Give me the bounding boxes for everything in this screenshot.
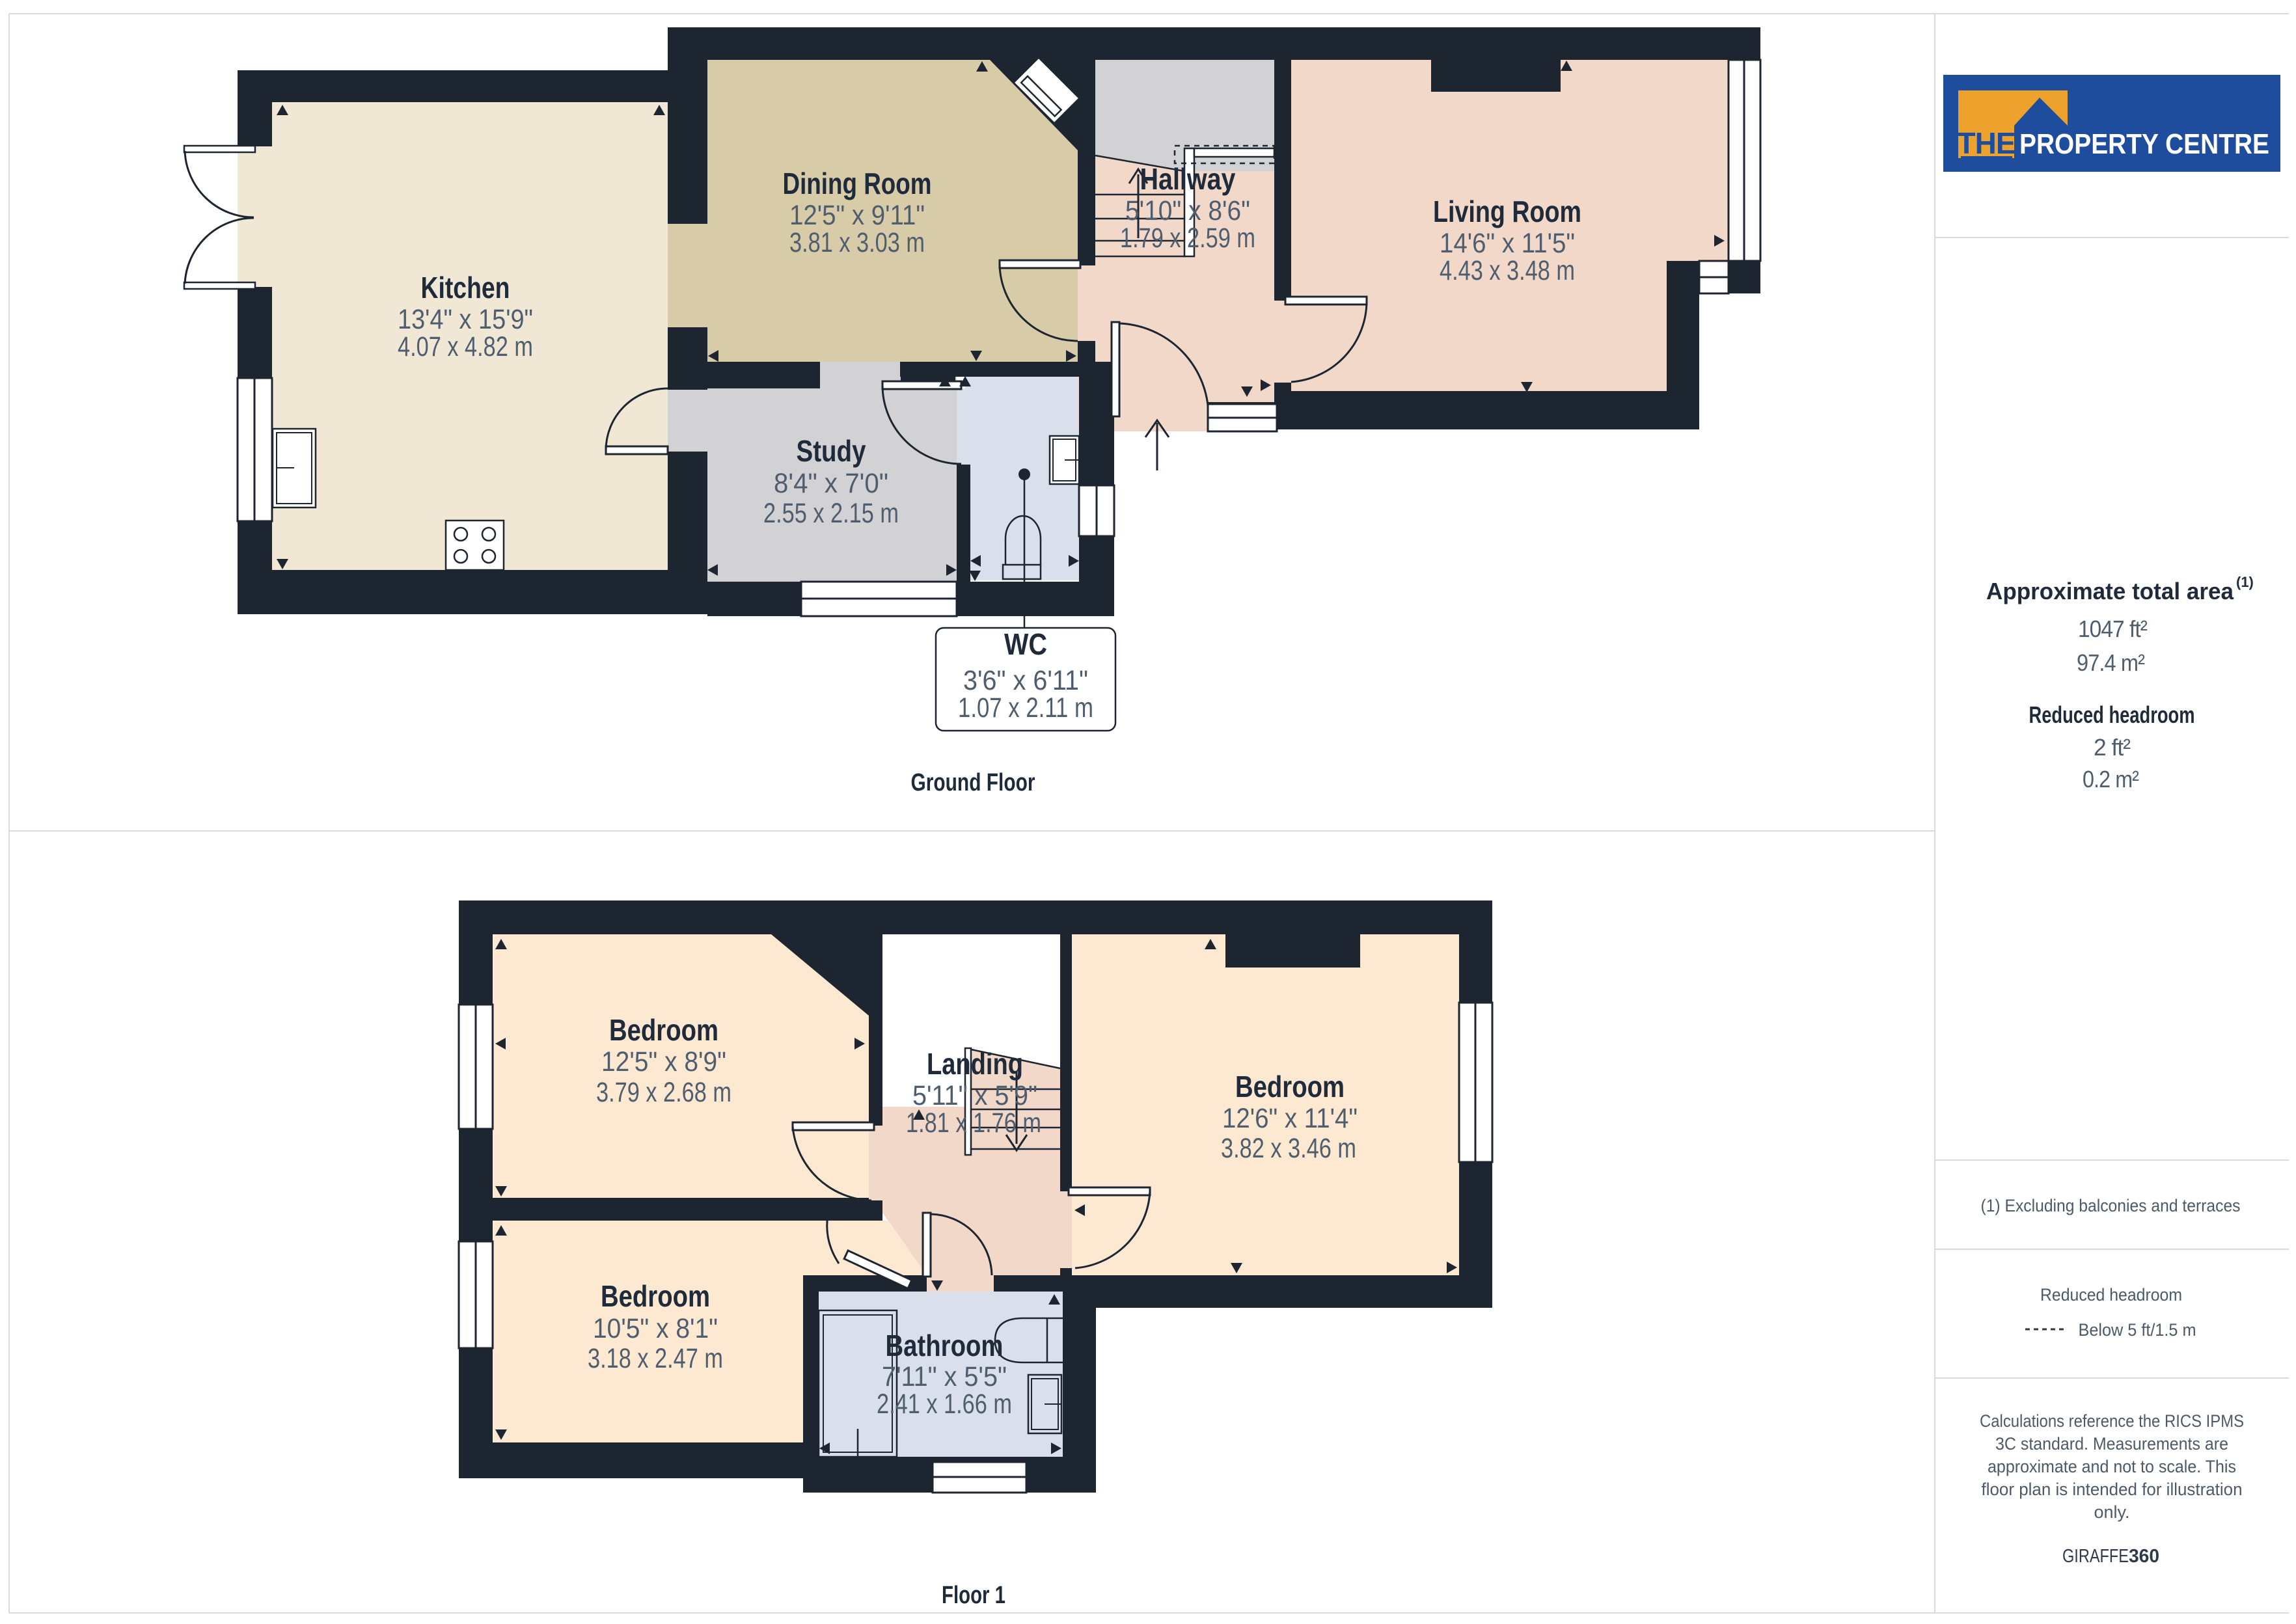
svg-text:4.07 x 4.82 m: 4.07 x 4.82 m (398, 331, 533, 362)
svg-text:2.41 x 1.66 m: 2.41 x 1.66 m (877, 1388, 1012, 1420)
svg-text:Study: Study (797, 434, 866, 468)
svg-text:only.: only. (2094, 1502, 2129, 1522)
svg-text:approximate and not to scale.: approximate and not to scale. This (1988, 1457, 2236, 1476)
svg-text:3C standard. Measurements are: 3C standard. Measurements are (1995, 1434, 2228, 1454)
svg-text:4.43 x 3.48 m: 4.43 x 3.48 m (1440, 255, 1575, 286)
svg-text:Living Room: Living Room (1433, 195, 1581, 228)
svg-text:Landing: Landing (927, 1047, 1023, 1081)
svg-text:3.79 x 2.68 m: 3.79 x 2.68 m (596, 1077, 731, 1108)
svg-text:Approximate total area: Approximate total area (1986, 578, 2234, 604)
svg-text:8'4" x 7'0": 8'4" x 7'0" (774, 468, 888, 499)
svg-text:Bedroom: Bedroom (601, 1279, 710, 1313)
svg-text:1.81 x 1.76 m: 1.81 x 1.76 m (906, 1107, 1041, 1139)
svg-text:1.07 x 2.11 m: 1.07 x 2.11 m (958, 692, 1093, 724)
svg-text:THE: THE (1958, 126, 2016, 160)
svg-text:Reduced headroom: Reduced headroom (2029, 701, 2195, 728)
svg-text:3.81 x 3.03 m: 3.81 x 3.03 m (789, 227, 925, 258)
svg-text:13'4" x 15'9": 13'4" x 15'9" (398, 304, 533, 335)
svg-text:Bedroom: Bedroom (1235, 1070, 1345, 1103)
svg-text:Reduced headroom: Reduced headroom (2040, 1285, 2182, 1305)
svg-text:10'5" x 8'1": 10'5" x 8'1" (593, 1313, 718, 1344)
svg-text:WC: WC (1004, 627, 1047, 661)
svg-text:5'10" x 8'6": 5'10" x 8'6" (1125, 195, 1250, 226)
svg-text:Calculations reference the RIC: Calculations reference the RICS IPMS (1980, 1411, 2244, 1431)
svg-text:(1) Excluding balconies and te: (1) Excluding balconies and terraces (1981, 1196, 2241, 1215)
svg-text:3.82 x 3.46 m: 3.82 x 3.46 m (1221, 1133, 1356, 1164)
svg-text:Ground Floor: Ground Floor (911, 769, 1035, 796)
svg-text:2 ft²: 2 ft² (2094, 734, 2131, 761)
svg-text:Below 5 ft/1.5 m: Below 5 ft/1.5 m (2079, 1320, 2196, 1340)
svg-text:Bedroom: Bedroom (609, 1013, 718, 1047)
svg-text:floor plan is intended for ill: floor plan is intended for illustration (1982, 1480, 2243, 1499)
svg-text:7'11" x 5'5": 7'11" x 5'5" (882, 1361, 1007, 1392)
svg-text:14'6" x 11'5": 14'6" x 11'5" (1440, 228, 1575, 259)
svg-text:Floor 1: Floor 1 (942, 1582, 1005, 1609)
svg-text:3'6" x 6'11": 3'6" x 6'11" (963, 665, 1088, 696)
svg-text:12'5" x 9'11": 12'5" x 9'11" (789, 200, 925, 231)
svg-text:Hallway: Hallway (1140, 162, 1236, 196)
svg-text:5'11" x 5'9": 5'11" x 5'9" (912, 1080, 1037, 1111)
svg-text:Bathroom: Bathroom (886, 1329, 1004, 1362)
svg-text:1047 ft²: 1047 ft² (2078, 616, 2148, 642)
svg-text:Dining Room: Dining Room (783, 167, 932, 200)
svg-text:97.4 m²: 97.4 m² (2077, 649, 2145, 676)
svg-text:12'6" x 11'4": 12'6" x 11'4" (1222, 1103, 1358, 1134)
svg-text:Kitchen: Kitchen (421, 271, 510, 304)
svg-text:GIRAFFE360: GIRAFFE360 (2062, 1546, 2159, 1567)
svg-text:(1): (1) (2236, 574, 2254, 590)
svg-text:PROPERTY CENTRE: PROPERTY CENTRE (2019, 128, 2269, 160)
svg-text:12'5" x 8'9": 12'5" x 8'9" (601, 1046, 726, 1077)
svg-text:1.79 x 2.59 m: 1.79 x 2.59 m (1120, 223, 1255, 254)
svg-text:3.18 x 2.47 m: 3.18 x 2.47 m (588, 1343, 723, 1374)
svg-text:0.2 m²: 0.2 m² (2083, 766, 2139, 792)
svg-text:2.55 x 2.15 m: 2.55 x 2.15 m (763, 498, 899, 529)
